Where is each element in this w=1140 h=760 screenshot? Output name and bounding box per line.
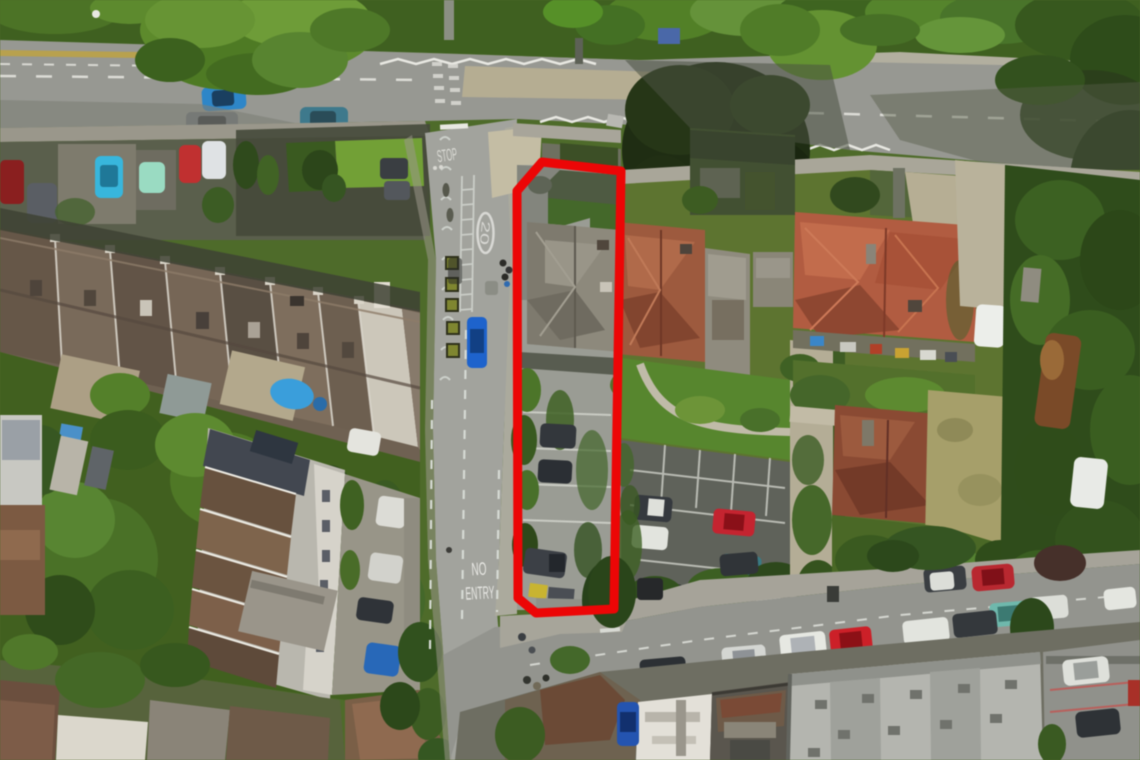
- svg-text:20: 20: [477, 220, 493, 246]
- svg-text:STOP: STOP: [436, 145, 458, 167]
- svg-text:ENTRY: ENTRY: [465, 582, 495, 603]
- svg-text:NO: NO: [471, 559, 487, 580]
